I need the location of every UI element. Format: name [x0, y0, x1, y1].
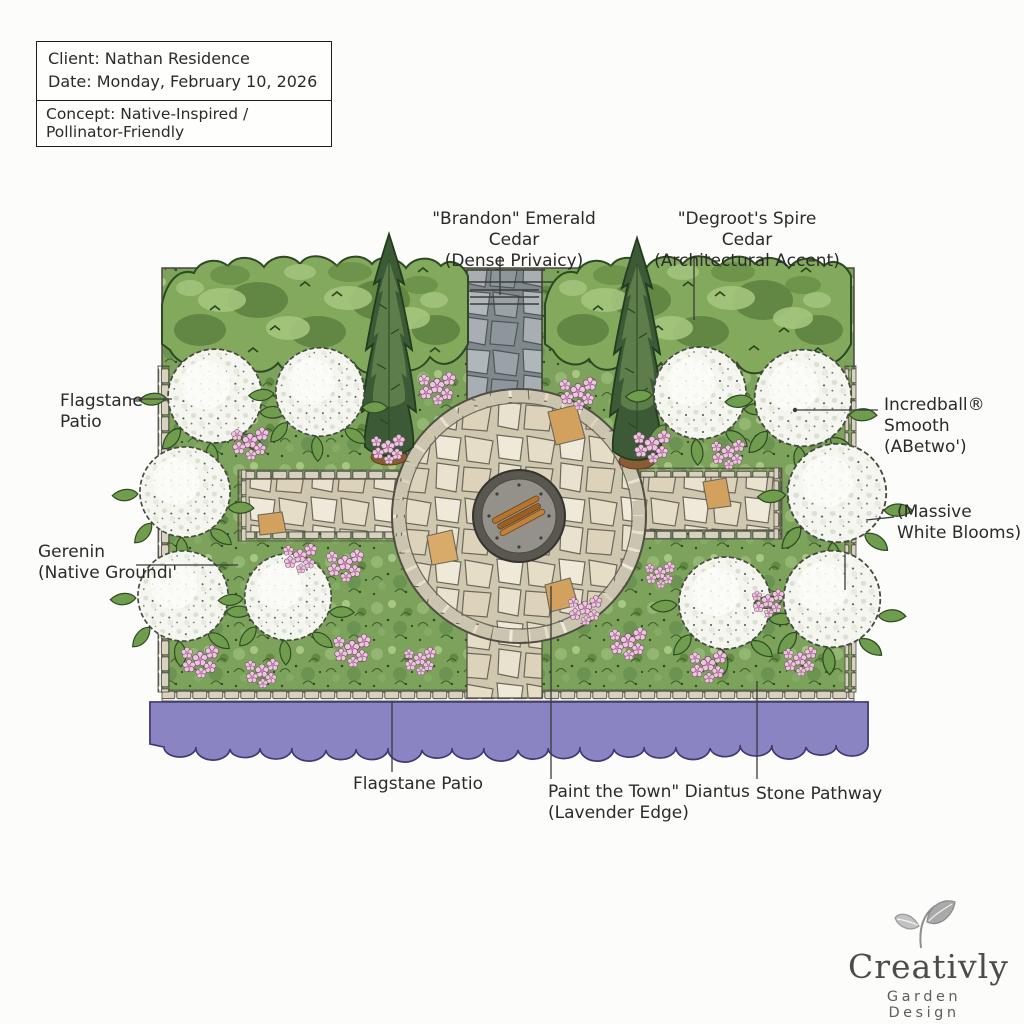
stone-pathway-top	[455, 270, 556, 404]
label-line: (Native Groundı'	[38, 563, 177, 584]
label-line: "Degroot's Spire Cedar	[652, 209, 842, 251]
label-line: (ABetwo')	[884, 437, 985, 458]
client-line: Client: Nathan Residence	[48, 47, 320, 70]
label-line: White Blooms)	[897, 523, 1021, 544]
lavender-edge-border	[150, 702, 868, 762]
label-line: (Architectural Accent)	[652, 251, 842, 272]
brand-logo: Creativly Garden Design	[848, 898, 1000, 1021]
logo-tagline: Garden Design	[848, 989, 1000, 1021]
leaf-icon	[888, 898, 960, 950]
label-line: Incredball®	[884, 395, 985, 416]
label-line: Gerenin	[38, 542, 177, 563]
concept-line: Concept: Native-Inspired / Pollinator-Fr…	[37, 100, 331, 146]
label-line: (Massive	[897, 502, 1021, 523]
label-massive-white-blooms: (Massive White Blooms)	[897, 502, 1021, 544]
label-incrediball-hydrangea: Incredball® Smooth (ABetwo')	[884, 395, 985, 458]
title-block: Client: Nathan Residence Date: Monday, F…	[36, 41, 332, 147]
label-line: (Lavender Edge)	[548, 803, 750, 824]
logo-name: Creativly	[848, 950, 1000, 985]
fire-pit	[473, 470, 565, 562]
label-flagstone-patio-left: Flagstane Patio	[60, 391, 143, 433]
label-line: Smooth	[884, 416, 985, 437]
label-dianthus-lavender-edge: Paint the Town" Diantus (Lavender Edge)	[548, 782, 750, 824]
label-stone-pathway: Stone Pathway	[756, 784, 882, 805]
label-flagstone-patio-bottom: Flagstane Patio	[353, 774, 483, 795]
date-line: Date: Monday, February 10, 2026	[48, 70, 320, 93]
label-line: Paint the Town" Diantus	[548, 782, 750, 803]
label-line: (Dense Privaicy)	[418, 251, 610, 272]
label-line: Patio	[60, 412, 143, 433]
label-line: Flagstane	[60, 391, 143, 412]
garden-plan-drawing	[0, 0, 1024, 1024]
label-brandon-emerald-cedar: "Brandon" Emerald Cedar (Dense Privaicy)	[418, 209, 610, 272]
label-geranium-groundcover: Gerenin (Native Groundı'	[38, 542, 177, 584]
label-line: "Brandon" Emerald Cedar	[418, 209, 610, 251]
label-degroot-spire-cedar: "Degroot's Spire Cedar (Architectural Ac…	[652, 209, 842, 272]
title-block-top: Client: Nathan Residence Date: Monday, F…	[37, 42, 331, 100]
garden-design-sheet: Client: Nathan Residence Date: Monday, F…	[0, 0, 1024, 1024]
